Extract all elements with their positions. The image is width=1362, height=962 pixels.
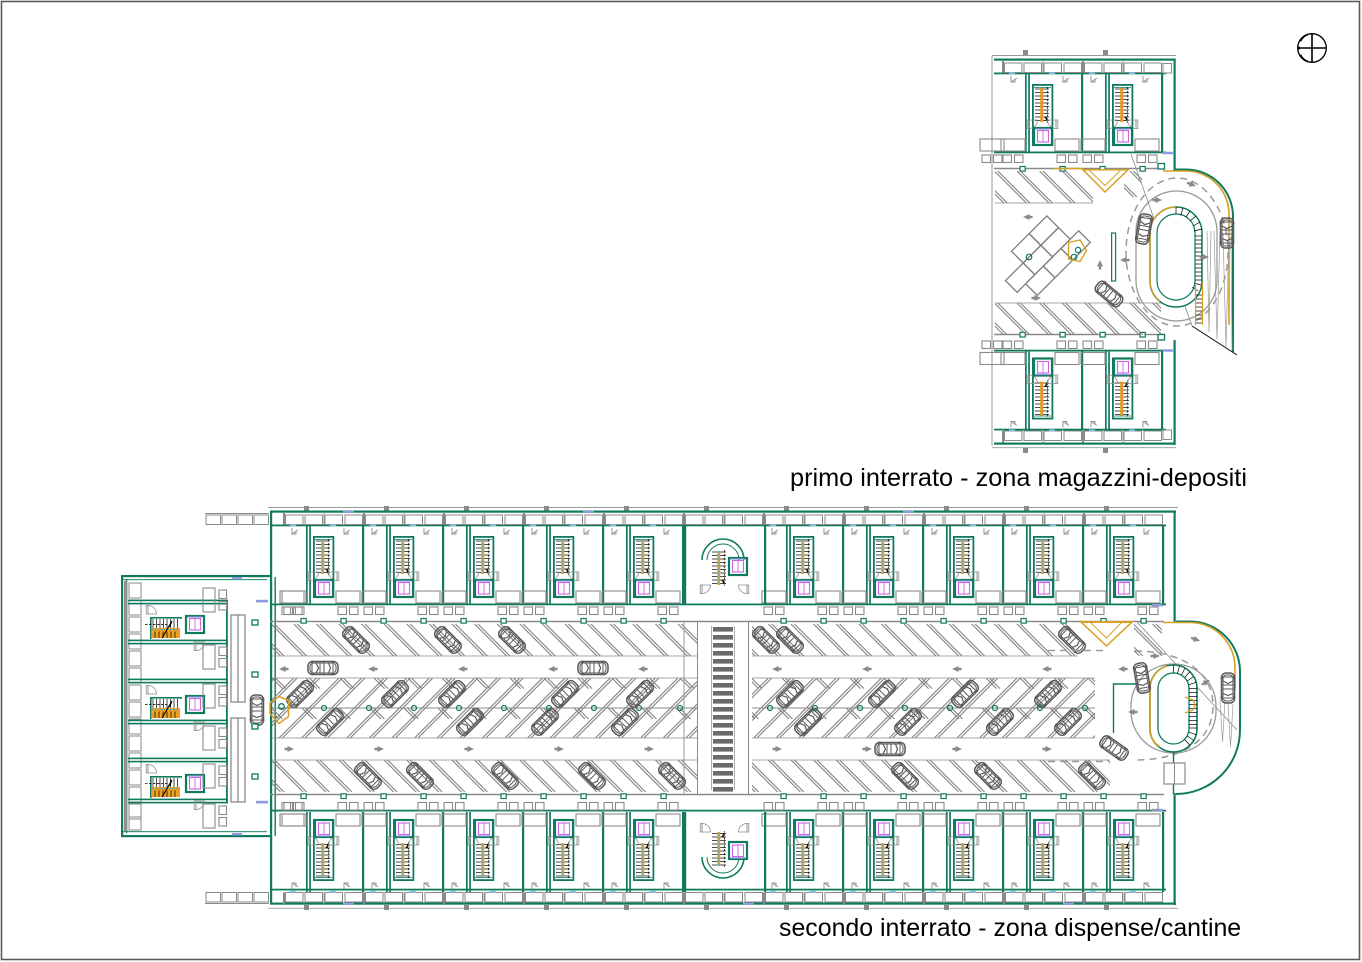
svg-text:secondo interrato - zona dispe: secondo interrato - zona dispense/cantin… <box>779 914 1241 942</box>
svg-text:primo interrato - zona magazzi: primo interrato - zona magazzini-deposit… <box>790 464 1247 492</box>
